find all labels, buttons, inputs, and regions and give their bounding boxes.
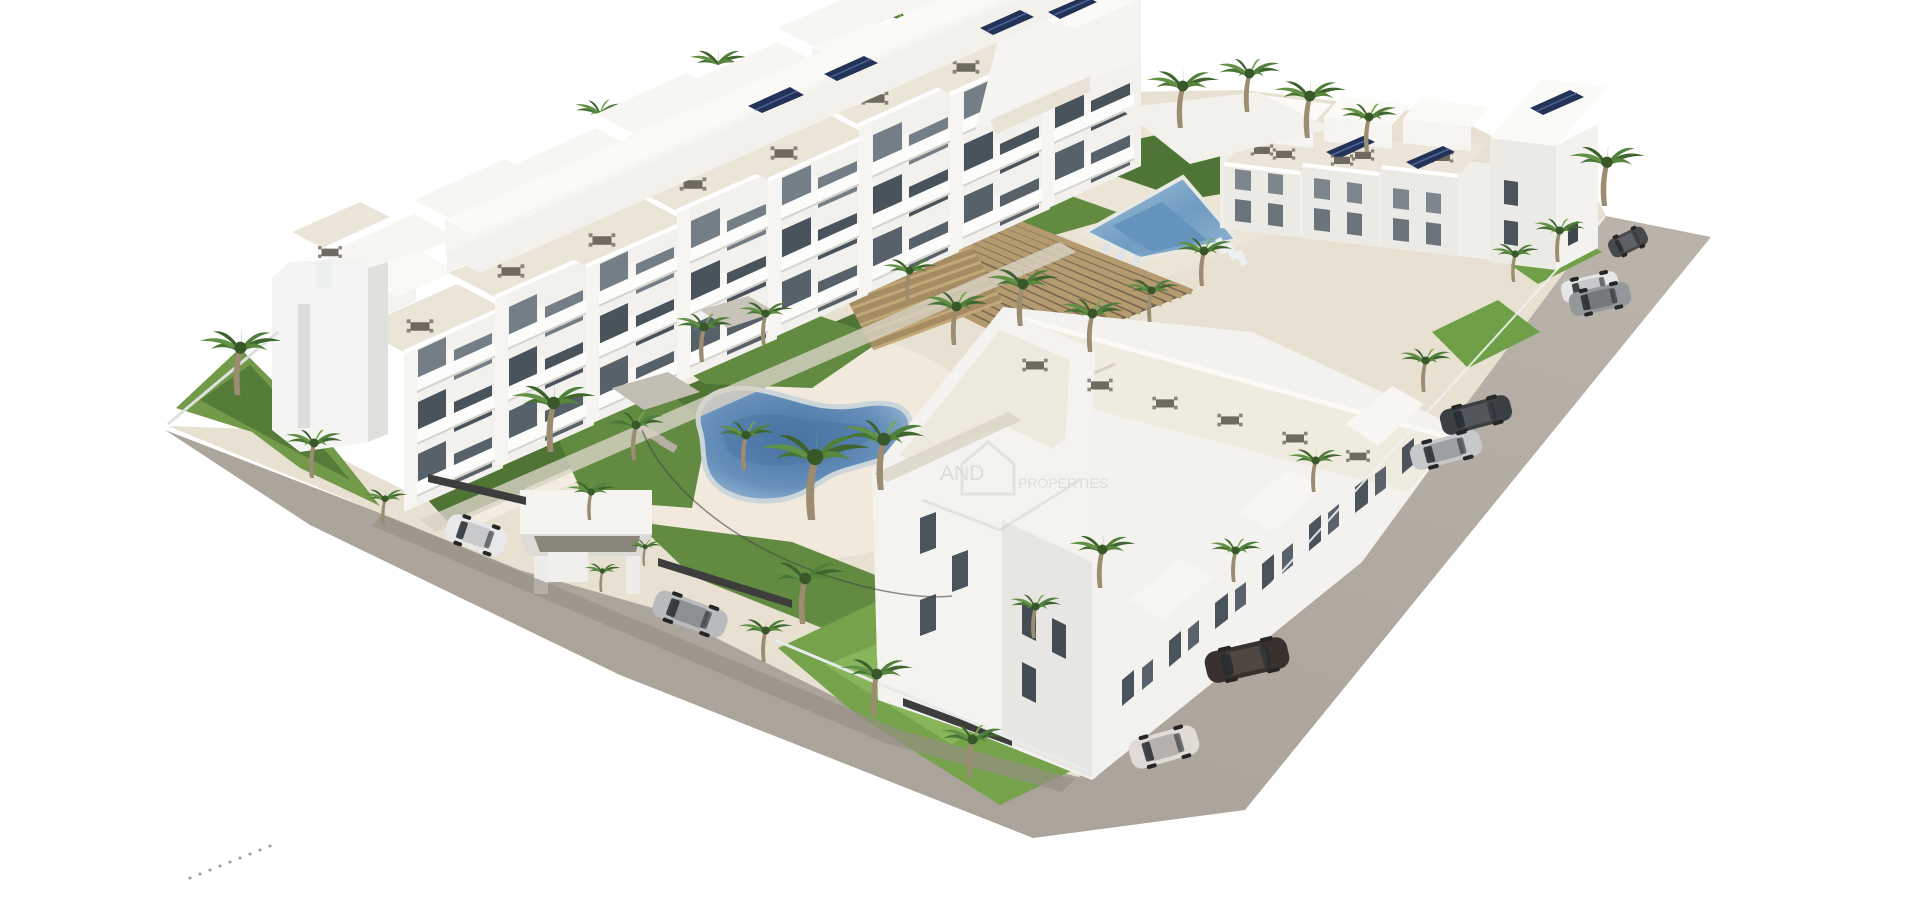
svg-text:PROPERTIES: PROPERTIES [1018,475,1108,491]
svg-text:AND: AND [940,462,984,485]
